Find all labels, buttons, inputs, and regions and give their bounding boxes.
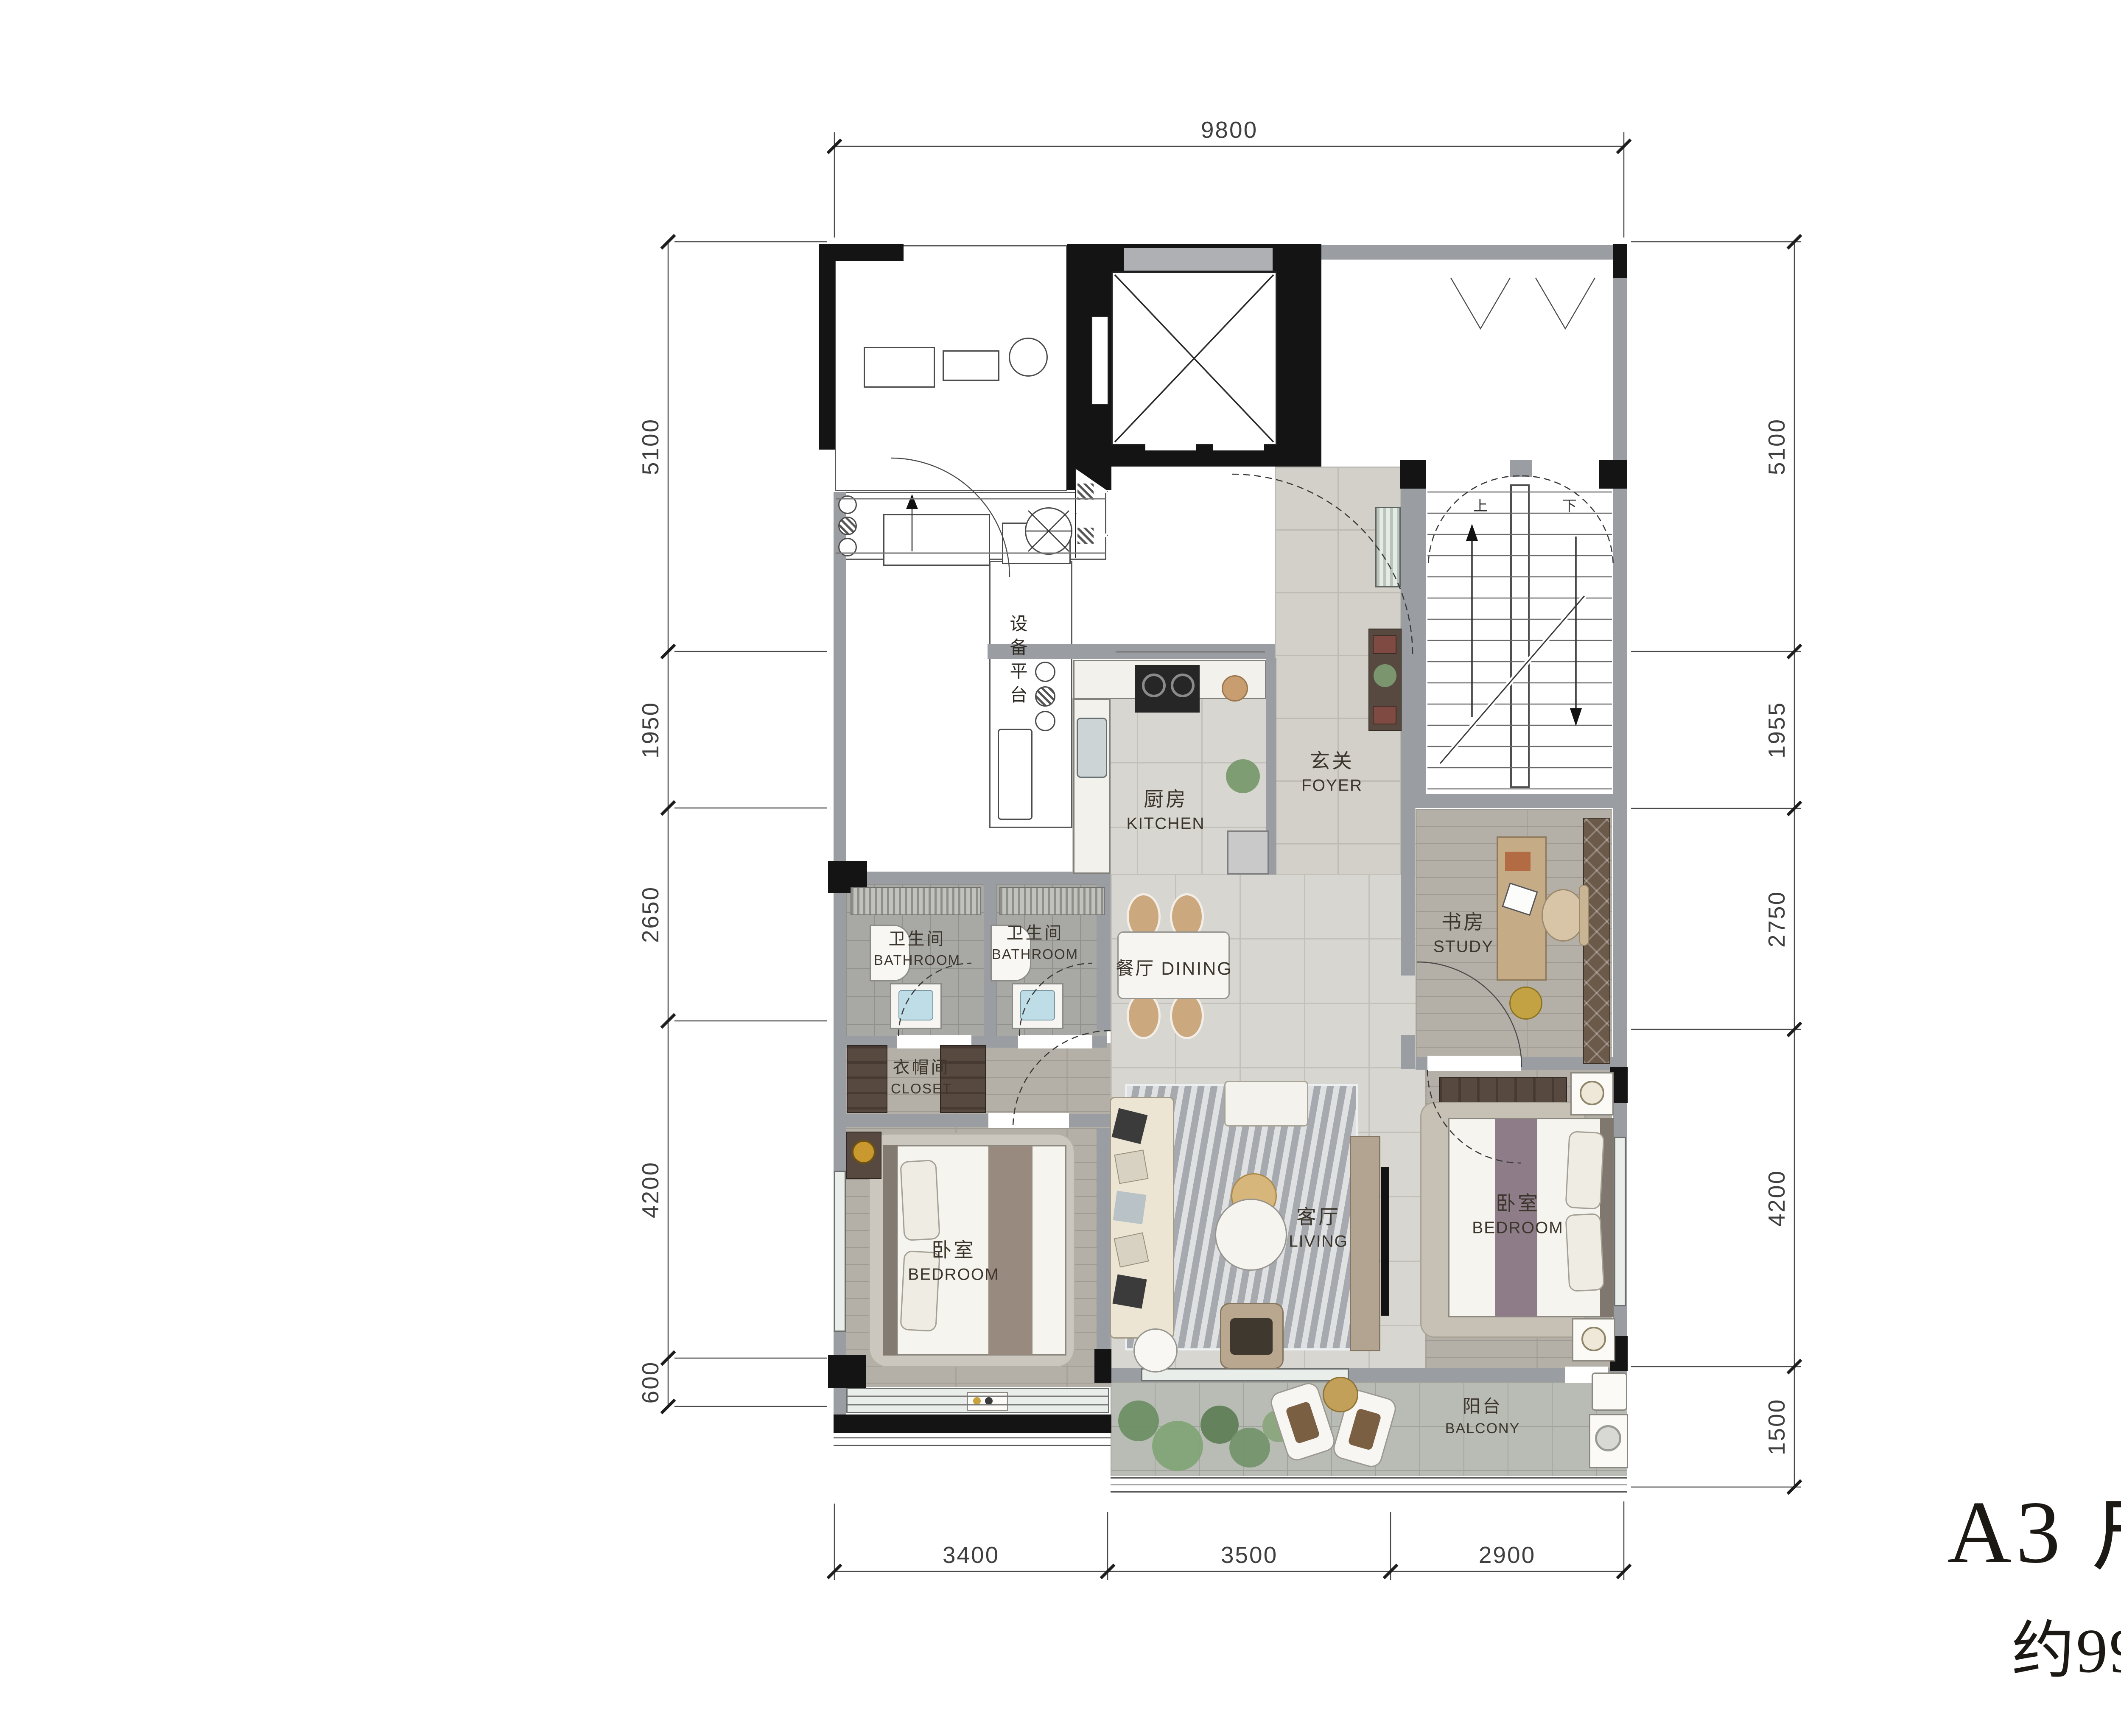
- label-living-zh: 客厅: [1289, 1201, 1348, 1230]
- label-bathroom-a-zh: 卫生间: [874, 925, 960, 950]
- linework-layer: [0, 0, 2121, 1736]
- label-kitchen: 厨房 KITCHEN: [1126, 783, 1205, 833]
- label-stair-down: 下: [1562, 495, 1577, 515]
- label-study-zh: 书房: [1433, 906, 1494, 935]
- label-closet: 衣帽间 CLOSET: [891, 1054, 952, 1097]
- label-dining: 餐厅 DINING: [1116, 954, 1232, 980]
- dim-top-total: 9800: [1201, 116, 1258, 143]
- label-dining-zh: 餐厅: [1116, 959, 1155, 979]
- dim-bottom-3: 2900: [1479, 1541, 1536, 1568]
- dim-right-3: 2750: [1763, 891, 1790, 948]
- dim-right-5: 1500: [1763, 1398, 1790, 1455]
- dim-right-4: 4200: [1763, 1170, 1790, 1227]
- dim-bottom-2: 3500: [1221, 1541, 1278, 1568]
- dim-bottom-1: 3400: [943, 1541, 999, 1568]
- unit-area: 约99m²: [1858, 1599, 2121, 1690]
- unit-area-value: 99: [2076, 1616, 2121, 1686]
- label-bathroom-a-en: BATHROOM: [874, 952, 960, 968]
- label-foyer-zh: 玄关: [1301, 745, 1363, 774]
- label-bedroom-right-zh: 卧室: [1472, 1187, 1564, 1216]
- label-bathroom-b-en: BATHROOM: [992, 946, 1078, 962]
- label-study-en: STUDY: [1433, 938, 1494, 956]
- dim-left-5: 600: [637, 1361, 664, 1404]
- dim-left-3: 2650: [637, 886, 664, 943]
- unit-type-title: A3 户型: [1858, 1459, 2121, 1588]
- dim-left-4: 4200: [637, 1161, 664, 1218]
- label-living-en: LIVING: [1289, 1233, 1348, 1251]
- label-closet-zh: 衣帽间: [891, 1054, 952, 1078]
- label-stair-up: 上: [1473, 495, 1488, 515]
- label-closet-en: CLOSET: [891, 1081, 952, 1097]
- label-balcony: 阳台 BALCONY: [1445, 1392, 1520, 1437]
- label-bathroom-b-zh: 卫生间: [992, 919, 1078, 944]
- label-bedroom-left: 卧室 BEDROOM: [908, 1234, 999, 1284]
- unit-area-prefix: 约: [2012, 1616, 2076, 1686]
- label-bathroom-a: 卫生间 BATHROOM: [874, 925, 960, 968]
- label-equipment-platform: 设备平台: [1005, 614, 1030, 709]
- label-bedroom-left-en: BEDROOM: [908, 1266, 999, 1284]
- title-block: A3 户型 约99m²: [1858, 1459, 2121, 1690]
- dim-left-1: 5100: [637, 418, 664, 475]
- label-foyer: 玄关 FOYER: [1301, 745, 1363, 795]
- label-study: 书房 STUDY: [1433, 906, 1494, 956]
- dim-left-2: 1950: [637, 702, 664, 758]
- label-bedroom-right: 卧室 BEDROOM: [1472, 1187, 1564, 1238]
- dim-right-1: 5100: [1763, 418, 1790, 475]
- dim-right-2: 1955: [1763, 702, 1790, 758]
- label-bathroom-b: 卫生间 BATHROOM: [992, 919, 1078, 962]
- label-kitchen-zh: 厨房: [1126, 783, 1205, 812]
- label-bedroom-right-en: BEDROOM: [1472, 1219, 1564, 1238]
- label-dining-en: DINING: [1161, 959, 1233, 979]
- floorplan-page: 9800 3400 3500 2900 5100 1950 2650 4200 …: [0, 0, 2121, 1736]
- label-kitchen-en: KITCHEN: [1126, 815, 1205, 833]
- label-living: 客厅 LIVING: [1289, 1201, 1348, 1251]
- label-balcony-en: BALCONY: [1445, 1420, 1520, 1437]
- label-bedroom-left-zh: 卧室: [908, 1234, 999, 1263]
- label-foyer-en: FOYER: [1301, 777, 1363, 795]
- label-balcony-zh: 阳台: [1445, 1392, 1520, 1418]
